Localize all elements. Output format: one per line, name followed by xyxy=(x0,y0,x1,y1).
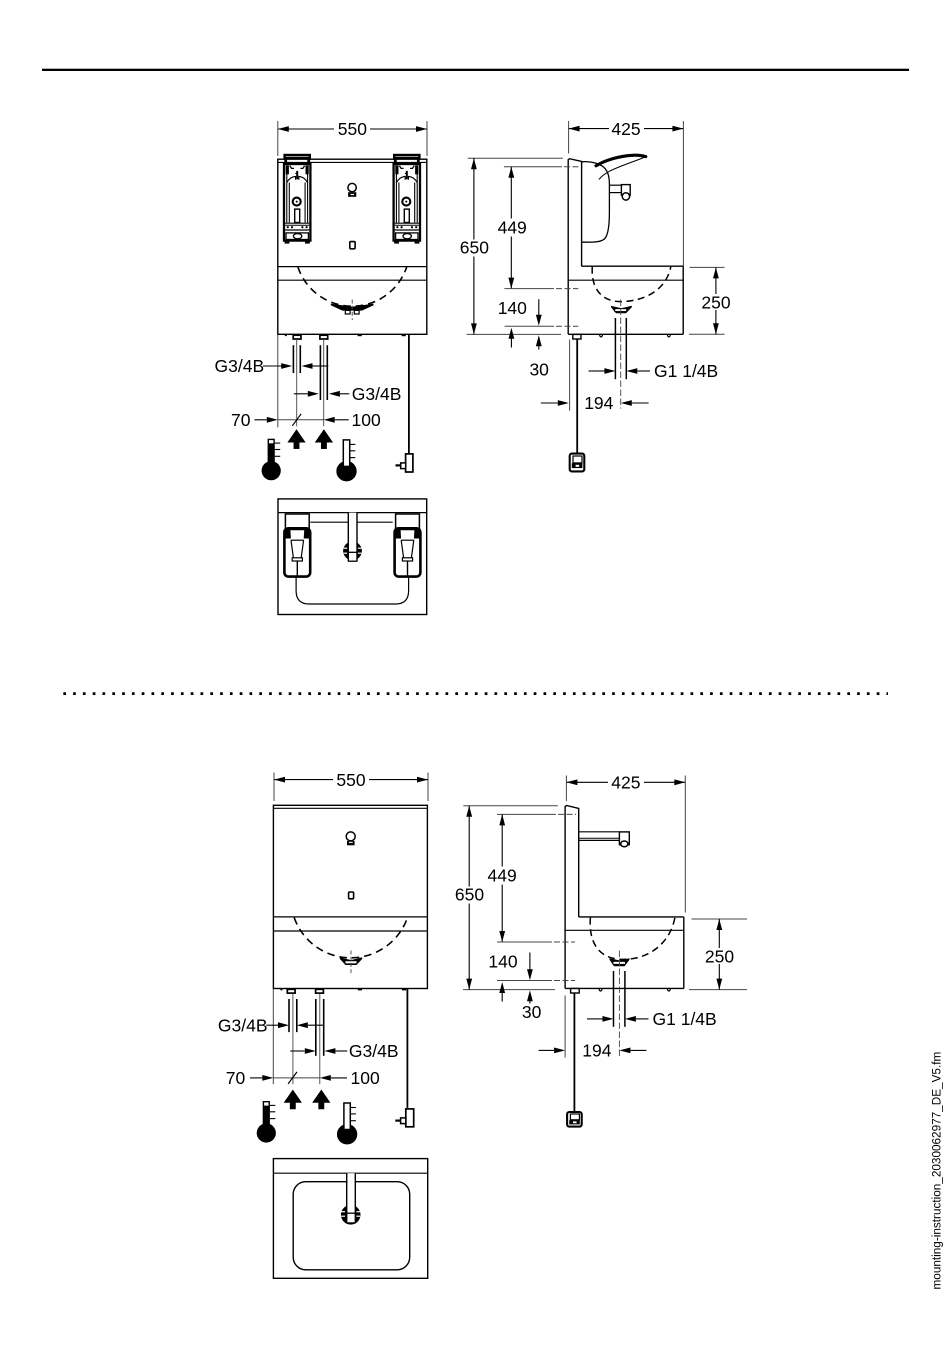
svg-text:70: 70 xyxy=(231,410,251,430)
svg-text:mounting-instruction_203006297: mounting-instruction_2030062977_DE_V5.fm xyxy=(931,1052,944,1290)
svg-text:G1 1/4B: G1 1/4B xyxy=(653,1009,717,1029)
svg-text:30: 30 xyxy=(522,1002,542,1022)
svg-text:194: 194 xyxy=(584,393,613,413)
svg-text:449: 449 xyxy=(487,866,516,886)
svg-text:G3/4B: G3/4B xyxy=(215,356,265,376)
svg-text:30: 30 xyxy=(529,360,549,380)
svg-text:100: 100 xyxy=(351,1068,380,1088)
svg-text:449: 449 xyxy=(498,218,527,238)
svg-text:G3/4B: G3/4B xyxy=(352,384,402,404)
svg-text:250: 250 xyxy=(701,293,730,313)
svg-text:100: 100 xyxy=(352,410,381,430)
svg-text:425: 425 xyxy=(611,119,640,139)
svg-text:70: 70 xyxy=(226,1068,246,1088)
svg-text:425: 425 xyxy=(611,773,640,793)
svg-text:140: 140 xyxy=(488,952,517,972)
svg-text:550: 550 xyxy=(336,770,365,790)
svg-text:250: 250 xyxy=(705,946,734,966)
svg-text:194: 194 xyxy=(582,1041,611,1061)
svg-text:650: 650 xyxy=(460,238,489,258)
svg-text:G3/4B: G3/4B xyxy=(218,1015,268,1035)
svg-text:140: 140 xyxy=(498,298,527,318)
svg-text:G1 1/4B: G1 1/4B xyxy=(654,361,718,381)
svg-text:650: 650 xyxy=(455,885,484,905)
svg-text:G3/4B: G3/4B xyxy=(349,1041,399,1061)
svg-text:550: 550 xyxy=(338,119,367,139)
